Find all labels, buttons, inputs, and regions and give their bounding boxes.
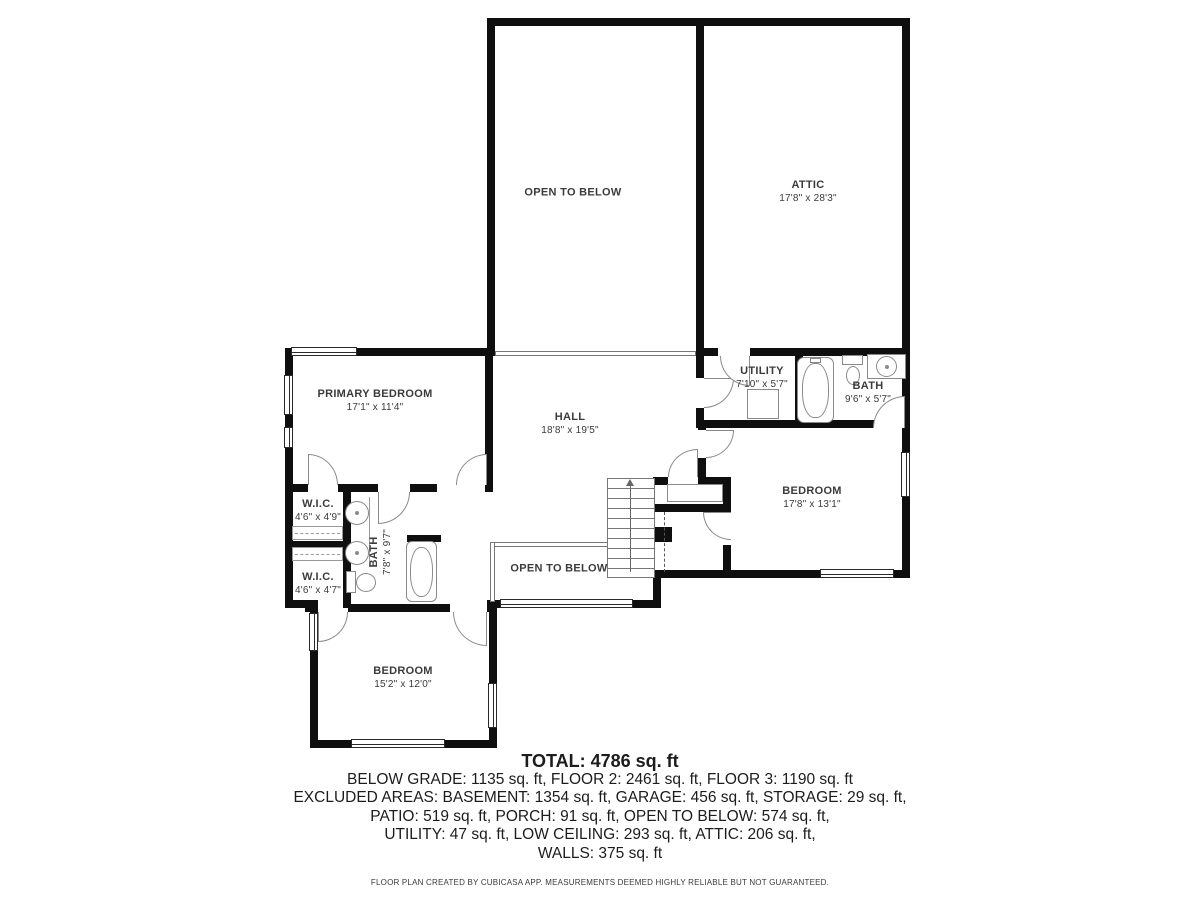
- stairs-up-arrow-icon: [626, 479, 634, 486]
- wall-segment: [410, 484, 437, 492]
- door-arc: [308, 454, 338, 485]
- room-label-hall: HALL 18'8" x 19'5": [541, 411, 598, 437]
- summary-line: EXCLUDED AREAS: BASEMENT: 1354 sq. ft, G…: [0, 789, 1200, 807]
- room-label-wic-lower: W.I.C. 4'6" x 4'7": [295, 571, 341, 597]
- sink-drain-icon: [355, 551, 359, 555]
- wall-segment: [285, 484, 308, 492]
- room-dims: 15'2" x 12'0": [373, 678, 433, 691]
- wall-segment: [696, 420, 875, 428]
- railing: [490, 542, 495, 602]
- wall-segment: [653, 504, 731, 512]
- room-dims: 17'1" x 11'4": [317, 401, 432, 414]
- room-dims: 7'8" x 9'7": [381, 529, 394, 575]
- room-label-bedroom-bottom: BEDROOM 15'2" x 12'0": [373, 665, 433, 691]
- disclaimer-text: FLOOR PLAN CREATED BY CUBICASA APP. MEAS…: [0, 878, 1200, 887]
- room-name: W.I.C.: [295, 498, 341, 511]
- room-label-bath-upper: BATH 9'6" x 5'7": [845, 380, 891, 406]
- wall-segment: [905, 420, 910, 428]
- closet-rod: [292, 526, 343, 540]
- wall-segment: [653, 477, 668, 485]
- stairs-direction-line: [630, 486, 631, 572]
- room-dims: 4'6" x 4'9": [295, 511, 341, 524]
- closet-rod: [292, 547, 343, 561]
- room-name: OPEN TO BELOW: [510, 563, 607, 576]
- window: [488, 683, 497, 728]
- room-name: HALL: [541, 411, 598, 424]
- door-arc: [378, 492, 410, 524]
- door-arc: [456, 454, 487, 485]
- window: [500, 599, 633, 608]
- room-name: BEDROOM: [782, 485, 842, 498]
- window: [901, 452, 910, 497]
- bathtub-icon: [802, 363, 829, 418]
- area-summary: TOTAL: 4786 sq. ft BELOW GRADE: 1135 sq.…: [0, 752, 1200, 887]
- room-name: BATH: [368, 529, 381, 575]
- room-dims: 4'6" x 4'7": [295, 584, 341, 597]
- room-name: UTILITY: [736, 365, 788, 378]
- wall-segment: [696, 18, 704, 356]
- toilet-icon: [346, 571, 356, 593]
- staircase: [607, 478, 655, 578]
- wall-segment: [348, 604, 450, 612]
- summary-line: BELOW GRADE: 1135 sq. ft, FLOOR 2: 2461 …: [0, 771, 1200, 789]
- sink-drain-icon: [885, 365, 889, 369]
- railing: [490, 542, 608, 547]
- room-name: ATTIC: [779, 179, 836, 192]
- window: [820, 569, 894, 578]
- water-heater-icon: [747, 389, 779, 419]
- toilet-icon: [842, 355, 863, 365]
- faucet-icon: [810, 358, 821, 363]
- room-label-utility: UTILITY 7'10" x 5'7": [736, 365, 788, 391]
- room-name: PRIMARY BEDROOM: [317, 388, 432, 401]
- room-name: OPEN TO BELOW: [524, 187, 621, 200]
- wall-segment: [723, 477, 731, 512]
- room-dims: 18'8" x 19'5": [541, 424, 598, 437]
- room-label-bedroom-right: BEDROOM 17'8" x 13'1": [782, 485, 842, 511]
- room-dims: 17'8" x 13'1": [782, 498, 842, 511]
- window: [291, 347, 357, 356]
- room-label-attic: ATTIC 17'8" x 28'3": [779, 179, 836, 205]
- room-label-bath-left: BATH 7'8" x 9'7": [368, 529, 394, 575]
- wall-segment: [487, 18, 495, 356]
- room-label-open-to-below-lower: OPEN TO BELOW: [510, 563, 607, 576]
- sink-drain-icon: [355, 511, 359, 515]
- door-arc: [453, 612, 487, 646]
- room-label-wic-upper: W.I.C. 4'6" x 4'9": [295, 498, 341, 524]
- summary-line: UTILITY: 47 sq. ft, LOW CEILING: 293 sq.…: [0, 826, 1200, 844]
- door-arc: [706, 430, 734, 458]
- wall-segment: [338, 484, 378, 492]
- window: [351, 739, 445, 748]
- wall-segment: [653, 527, 672, 542]
- window: [309, 613, 318, 651]
- window: [284, 375, 293, 415]
- door-arc: [703, 512, 731, 540]
- door-arc: [704, 378, 734, 408]
- room-name: W.I.C.: [295, 571, 341, 584]
- wall-segment: [723, 545, 731, 578]
- bathtub-icon: [410, 547, 433, 597]
- summary-line: PATIO: 519 sq. ft, PORCH: 91 sq. ft, OPE…: [0, 808, 1200, 826]
- floor-plan: OPEN TO BELOW ATTIC 17'8" x 28'3" PRIMAR…: [0, 0, 1200, 900]
- closet-shelf: [667, 484, 723, 502]
- wall-segment: [698, 420, 706, 430]
- door-arc: [318, 612, 348, 642]
- closet-rod-dashed-line: [664, 512, 665, 572]
- total-area: TOTAL: 4786 sq. ft: [0, 752, 1200, 771]
- room-name: BATH: [845, 380, 891, 393]
- window: [284, 427, 293, 448]
- summary-line: WALLS: 375 sq. ft: [0, 845, 1200, 863]
- railing: [495, 351, 696, 356]
- wall-segment: [696, 348, 704, 378]
- door-arc: [668, 449, 698, 477]
- room-name: BEDROOM: [373, 665, 433, 678]
- room-dims: 9'6" x 5'7": [845, 393, 891, 406]
- room-label-primary-bedroom: PRIMARY BEDROOM 17'1" x 11'4": [317, 388, 432, 414]
- room-label-open-to-below-upper: OPEN TO BELOW: [524, 187, 621, 200]
- room-dims: 7'10" x 5'7": [736, 378, 788, 391]
- toilet-icon: [356, 573, 376, 592]
- room-dims: 17'8" x 28'3": [779, 192, 836, 205]
